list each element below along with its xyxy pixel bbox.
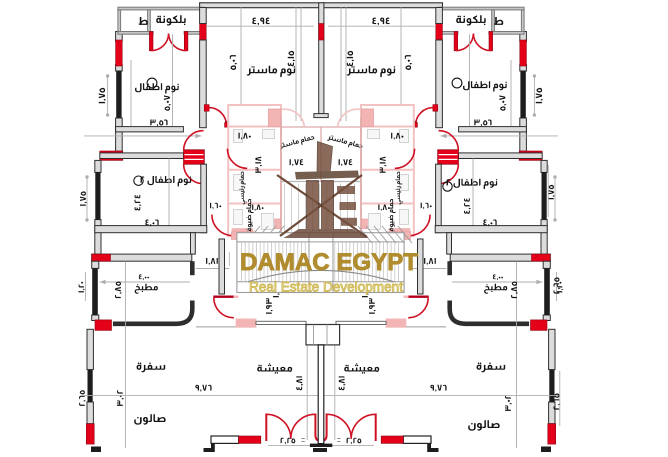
- svg-text:Real Estate Development: Real Estate Development: [249, 280, 403, 295]
- svg-text:DAMAC EGYPT: DAMAC EGYPT: [240, 249, 418, 276]
